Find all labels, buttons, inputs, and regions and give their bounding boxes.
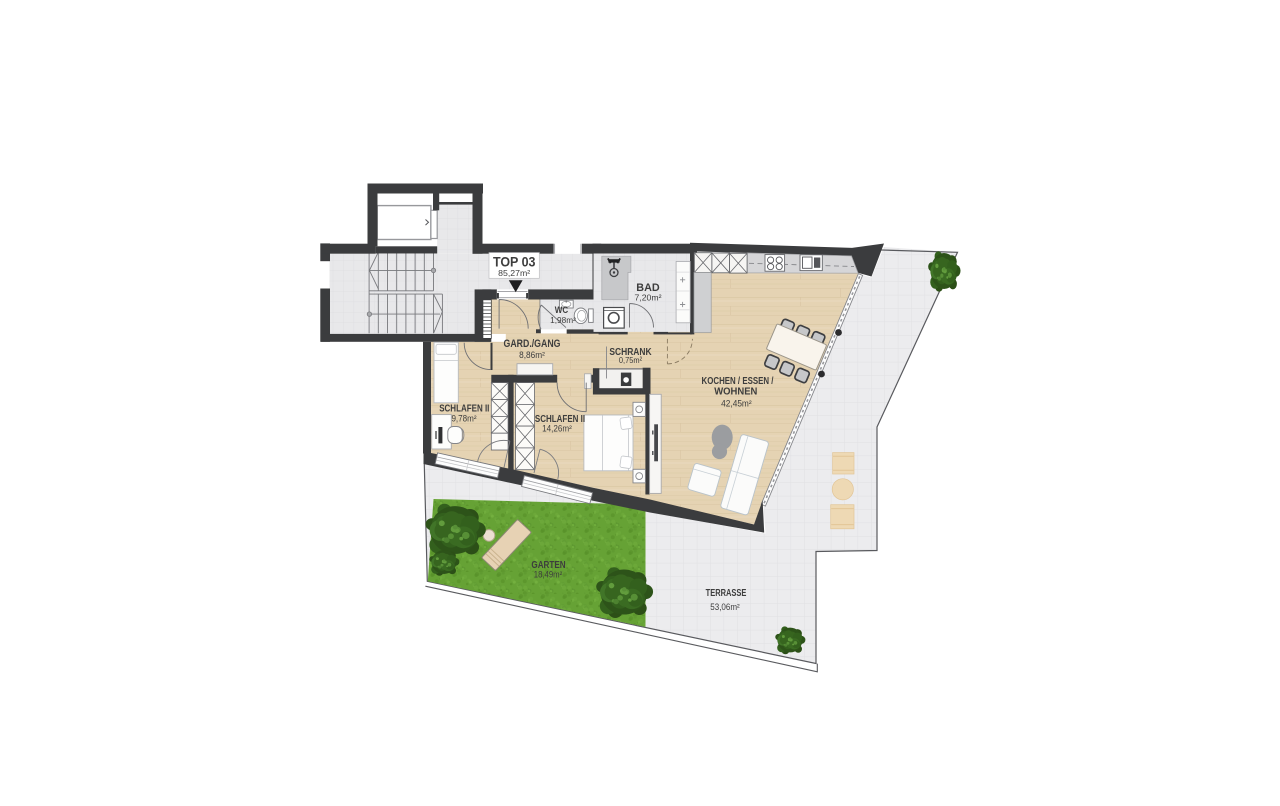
svg-text:WOHNEN: WOHNEN bbox=[714, 386, 757, 398]
svg-text:85,27m²: 85,27m² bbox=[498, 268, 530, 278]
svg-text:WC: WC bbox=[555, 305, 569, 315]
svg-text:8,86m²: 8,86m² bbox=[519, 350, 545, 360]
svg-text:0,75m²: 0,75m² bbox=[619, 355, 642, 365]
svg-text:42,45m²: 42,45m² bbox=[721, 398, 752, 408]
svg-text:53,06m²: 53,06m² bbox=[710, 602, 740, 612]
svg-text:18,49m²: 18,49m² bbox=[534, 569, 563, 579]
svg-text:14,26m²: 14,26m² bbox=[542, 423, 572, 433]
svg-text:9,78m²: 9,78m² bbox=[451, 413, 476, 423]
svg-text:7,20m²: 7,20m² bbox=[635, 292, 662, 302]
svg-text:1,98m²: 1,98m² bbox=[550, 316, 576, 325]
svg-text:TERRASSE: TERRASSE bbox=[706, 587, 747, 599]
svg-text:GARD./GANG: GARD./GANG bbox=[504, 338, 561, 350]
